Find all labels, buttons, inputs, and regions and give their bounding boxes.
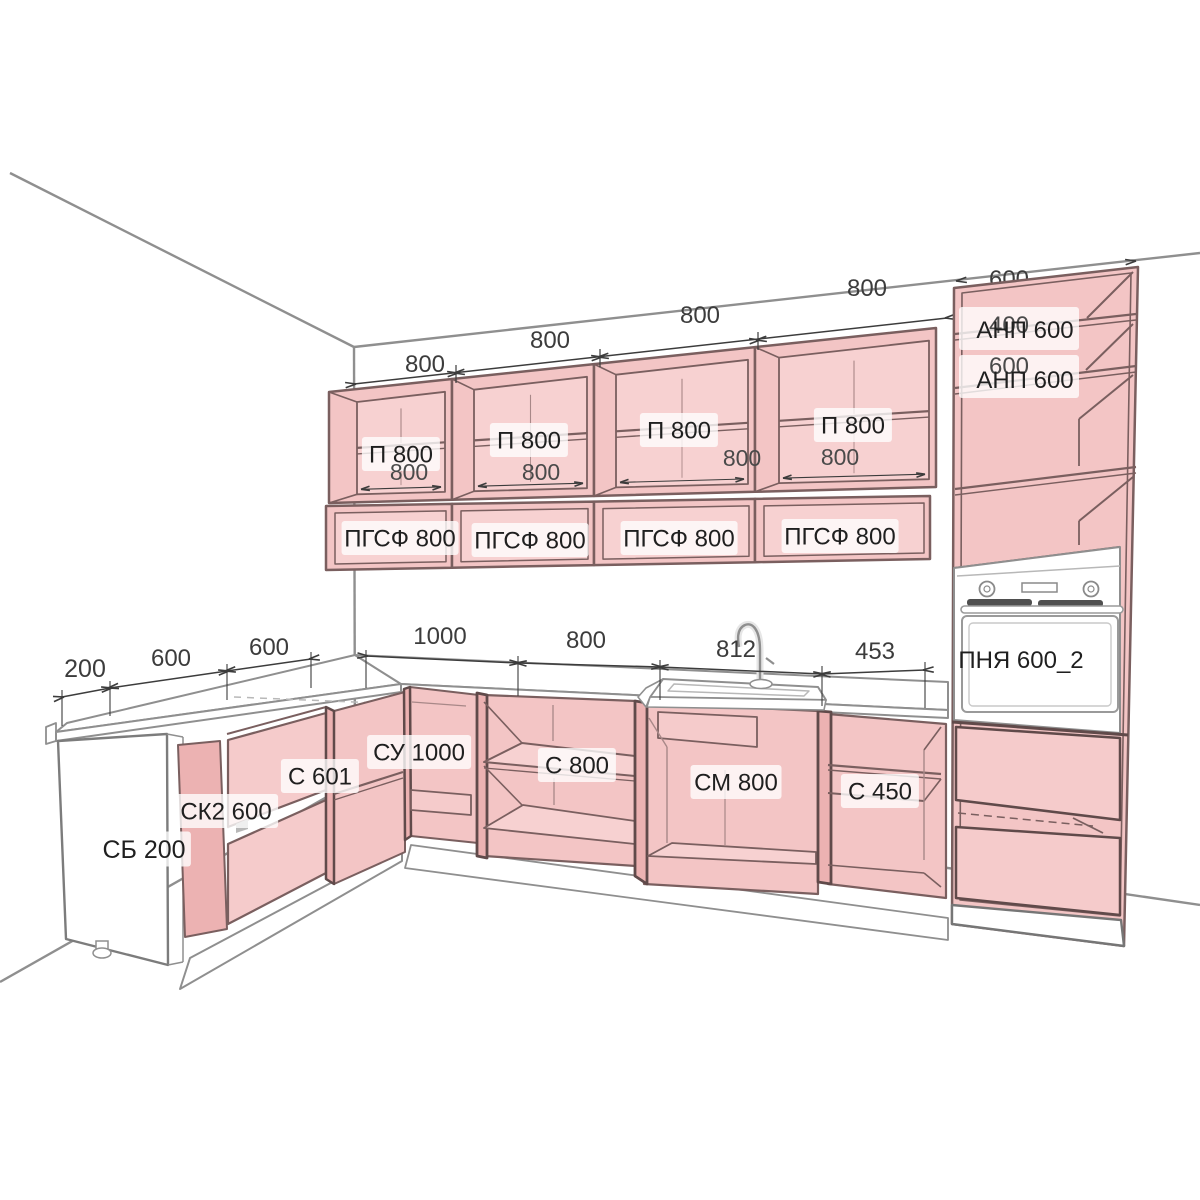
svg-text:800: 800 bbox=[405, 351, 445, 378]
svg-text:800: 800 bbox=[390, 459, 428, 485]
svg-text:800: 800 bbox=[522, 459, 560, 485]
svg-text:С 601: С 601 bbox=[288, 763, 352, 790]
svg-text:СБ 200: СБ 200 bbox=[102, 836, 185, 864]
svg-text:453: 453 bbox=[855, 638, 895, 665]
svg-text:800: 800 bbox=[723, 445, 761, 471]
svg-text:ПГСФ 800: ПГСФ 800 bbox=[344, 525, 455, 552]
svg-text:П 800: П 800 bbox=[497, 427, 561, 454]
svg-text:П 800: П 800 bbox=[821, 412, 885, 439]
svg-text:600: 600 bbox=[151, 645, 191, 672]
svg-text:СМ 800: СМ 800 bbox=[694, 769, 778, 796]
svg-text:812: 812 bbox=[716, 636, 756, 663]
svg-text:800: 800 bbox=[530, 327, 570, 354]
svg-text:СУ 1000: СУ 1000 bbox=[373, 739, 465, 766]
svg-text:800: 800 bbox=[821, 444, 859, 470]
svg-text:800: 800 bbox=[566, 627, 606, 654]
svg-text:200: 200 bbox=[64, 655, 106, 683]
svg-text:С 800: С 800 bbox=[545, 752, 609, 779]
svg-text:600: 600 bbox=[249, 634, 289, 661]
svg-text:800: 800 bbox=[680, 302, 720, 329]
svg-text:П 800: П 800 bbox=[647, 417, 711, 444]
svg-text:ПНЯ 600_2: ПНЯ 600_2 bbox=[958, 647, 1083, 674]
svg-text:СК2 600: СК2 600 bbox=[180, 798, 271, 825]
svg-text:800: 800 bbox=[847, 275, 887, 302]
svg-text:АНП 600: АНП 600 bbox=[976, 367, 1073, 394]
svg-text:1000: 1000 bbox=[413, 623, 466, 650]
svg-text:С 450: С 450 bbox=[848, 778, 912, 805]
svg-text:ПГСФ 800: ПГСФ 800 bbox=[474, 527, 585, 554]
svg-text:ПГСФ 800: ПГСФ 800 bbox=[784, 523, 895, 550]
svg-text:ПГСФ 800: ПГСФ 800 bbox=[623, 525, 734, 552]
svg-text:АНП 600: АНП 600 bbox=[976, 317, 1073, 344]
